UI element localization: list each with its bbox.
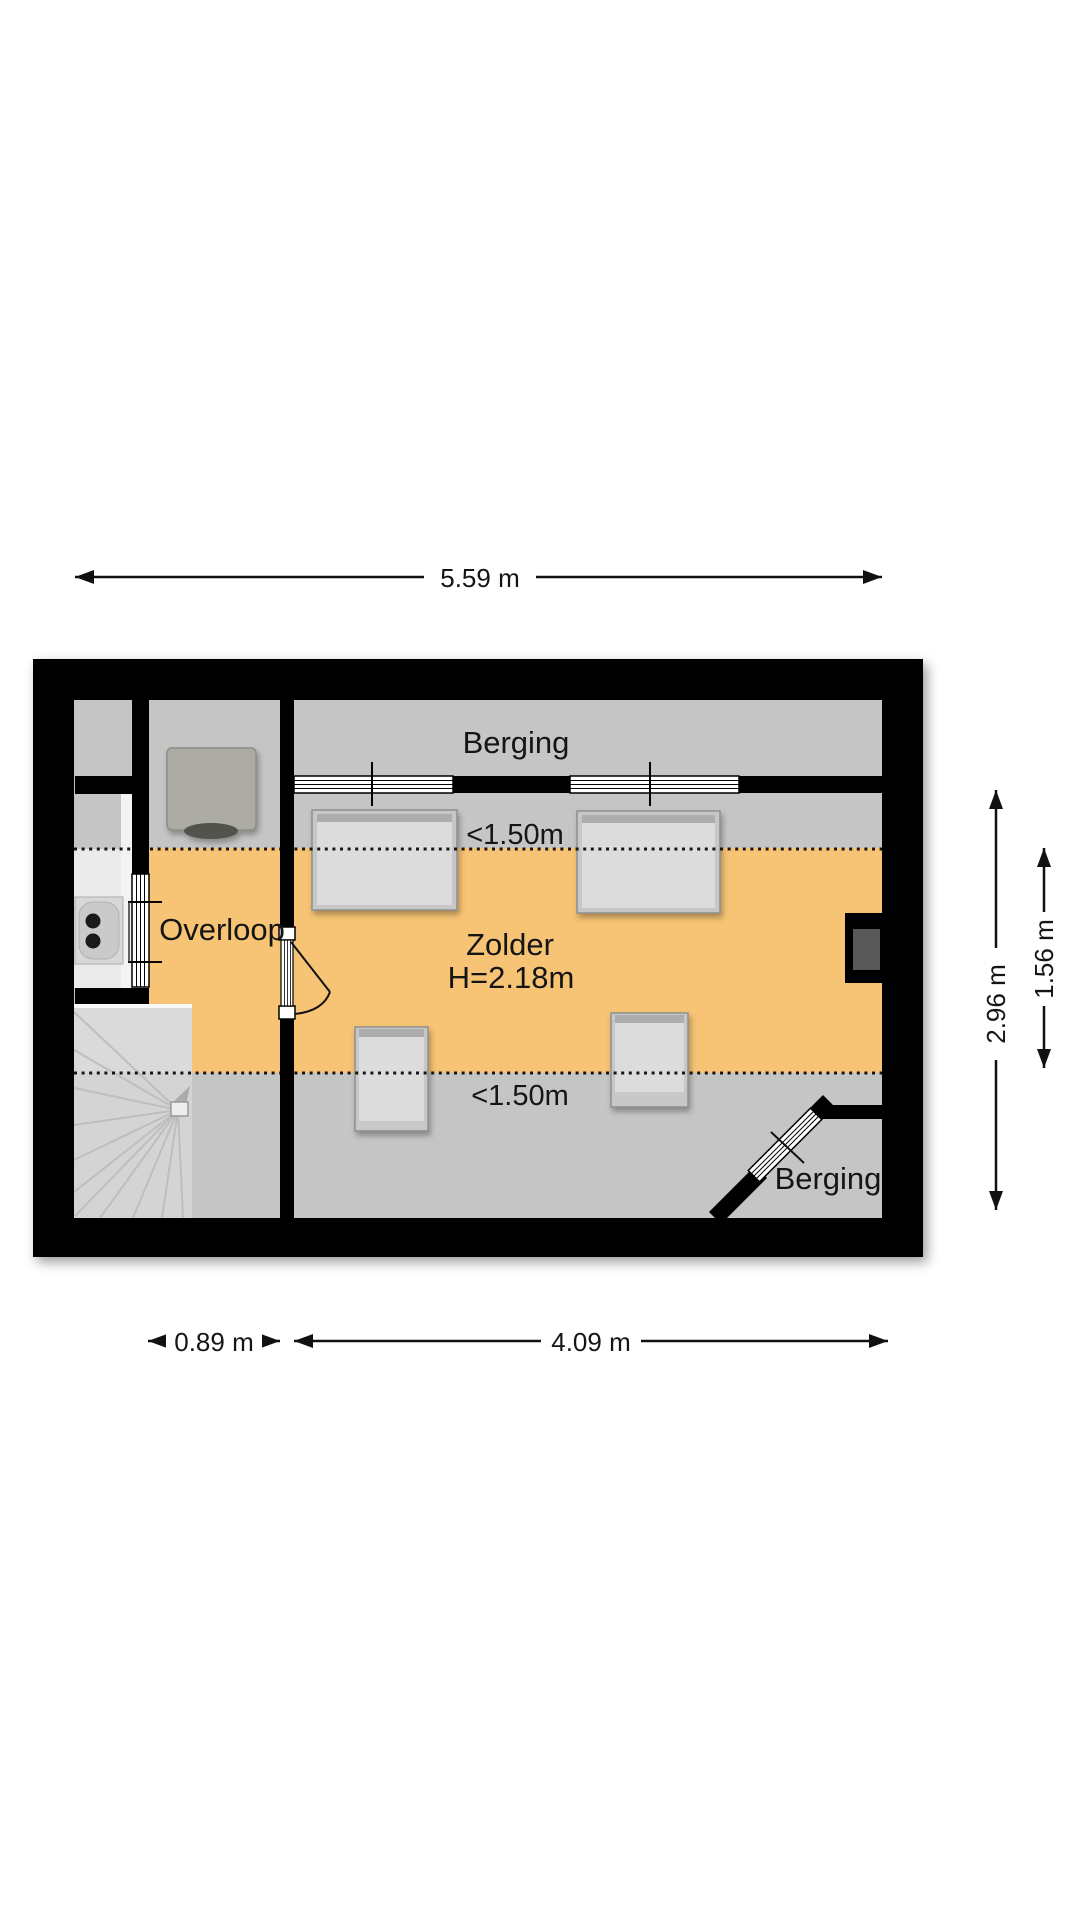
wall-berging-segment-1 (453, 776, 570, 793)
wall-divider-upper (280, 700, 294, 928)
arrowhead-down-icon (1037, 1049, 1051, 1068)
low-ceiling-annotation-top: <1.50m (466, 819, 564, 851)
room-label-overloop: Overloop (159, 912, 285, 947)
dimension-total-width-label: 5.59 m (440, 563, 520, 593)
arrowhead-left-icon (148, 1334, 167, 1348)
dimension-total-width: 5.59 m (75, 560, 882, 593)
arrowhead-right-icon (863, 570, 882, 584)
stairs (74, 1004, 192, 1218)
dimension-total-depth: 2.96 m (981, 790, 1011, 1210)
door-jamb (279, 1006, 295, 1019)
zolder-ceiling-height-label: H=2.18m (448, 960, 575, 995)
dimension-zolder-width: 4.09 m (294, 1326, 888, 1357)
chimney (845, 913, 882, 983)
arrowhead-right-icon (261, 1334, 280, 1348)
room-label-zolder: Zolder (466, 927, 554, 962)
room-label-berging-top: Berging (463, 725, 570, 760)
sink-fixture (75, 897, 123, 964)
dimension-overloop-width: 0.89 m (148, 1326, 280, 1357)
floorplan-drawing: Berging Overloop Zolder H=2.18m Berging … (0, 0, 1080, 1920)
room-label-berging-bottom: Berging (775, 1161, 882, 1196)
low-ceiling-annotation-bottom: <1.50m (471, 1080, 569, 1112)
door-leaf (281, 940, 293, 1006)
bed-bottom-left (355, 1027, 428, 1131)
wall-divider-lower (280, 1019, 294, 1218)
arrowhead-left-icon (294, 1334, 313, 1348)
stair-newel (171, 1102, 188, 1116)
arrowhead-down-icon (989, 1191, 1003, 1210)
arrowhead-up-icon (1037, 848, 1051, 867)
dimension-full-height-depth-label: 1.56 m (1029, 919, 1059, 999)
wall-left-horizontal-upper (75, 776, 149, 794)
floorplan-page: Berging Overloop Zolder H=2.18m Berging … (0, 0, 1080, 1920)
boiler (167, 748, 256, 839)
dimension-total-depth-label: 2.96 m (981, 964, 1011, 1044)
wall-berging-segment-2 (739, 776, 882, 793)
dimension-zolder-width-label: 4.09 m (551, 1327, 631, 1357)
dimension-overloop-width-label: 0.89 m (174, 1327, 254, 1357)
dimension-full-height-depth: 1.56 m (1029, 848, 1059, 1068)
arrowhead-right-icon (869, 1334, 888, 1348)
arrowhead-up-icon (989, 790, 1003, 809)
wall-stairwell (75, 988, 149, 1004)
arrowhead-left-icon (75, 570, 94, 584)
bed-top-right (577, 811, 720, 913)
bed-top-left (312, 810, 457, 910)
bed-bottom-right (611, 1013, 688, 1107)
